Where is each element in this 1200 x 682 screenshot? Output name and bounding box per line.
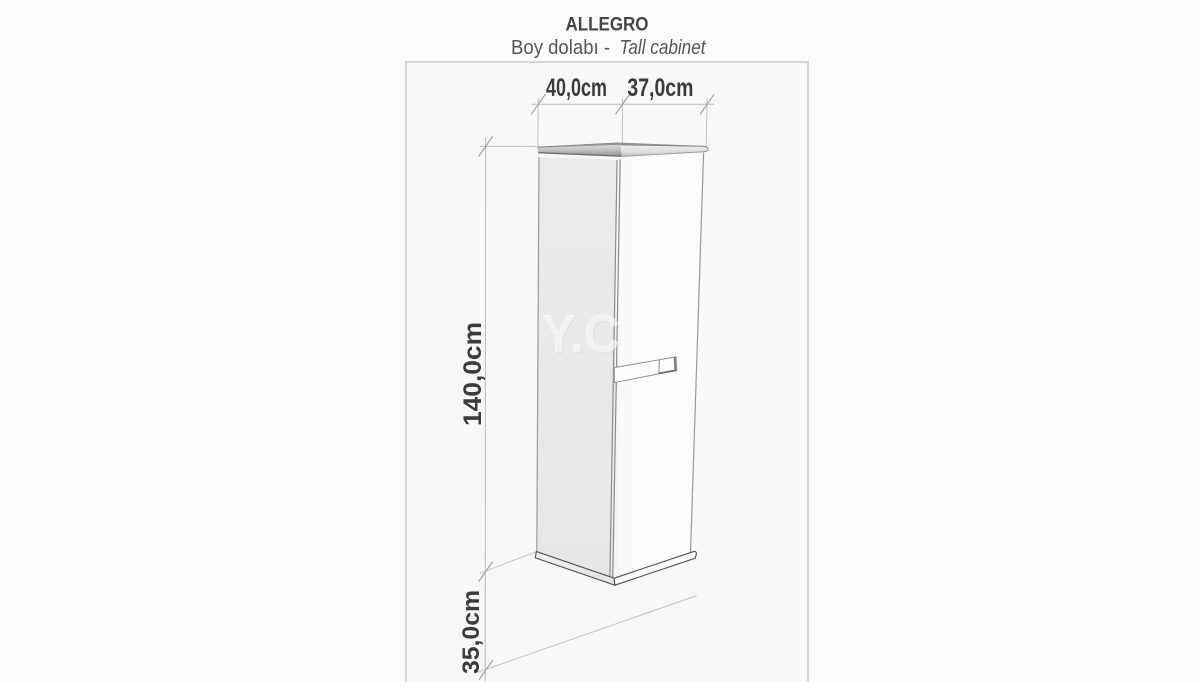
svg-text:35,0cm: 35,0cm	[458, 590, 485, 674]
svg-text:Boy dolabı -: Boy dolabı -	[511, 37, 610, 59]
svg-text:Y.C: Y.C	[542, 304, 620, 364]
svg-text:37,0cm: 37,0cm	[627, 74, 693, 102]
svg-text:ALLEGRO: ALLEGRO	[566, 13, 649, 35]
svg-text:40,0cm: 40,0cm	[546, 74, 607, 102]
svg-text:Tall cabinet: Tall cabinet	[620, 37, 707, 59]
svg-text:140,0cm: 140,0cm	[459, 322, 487, 426]
